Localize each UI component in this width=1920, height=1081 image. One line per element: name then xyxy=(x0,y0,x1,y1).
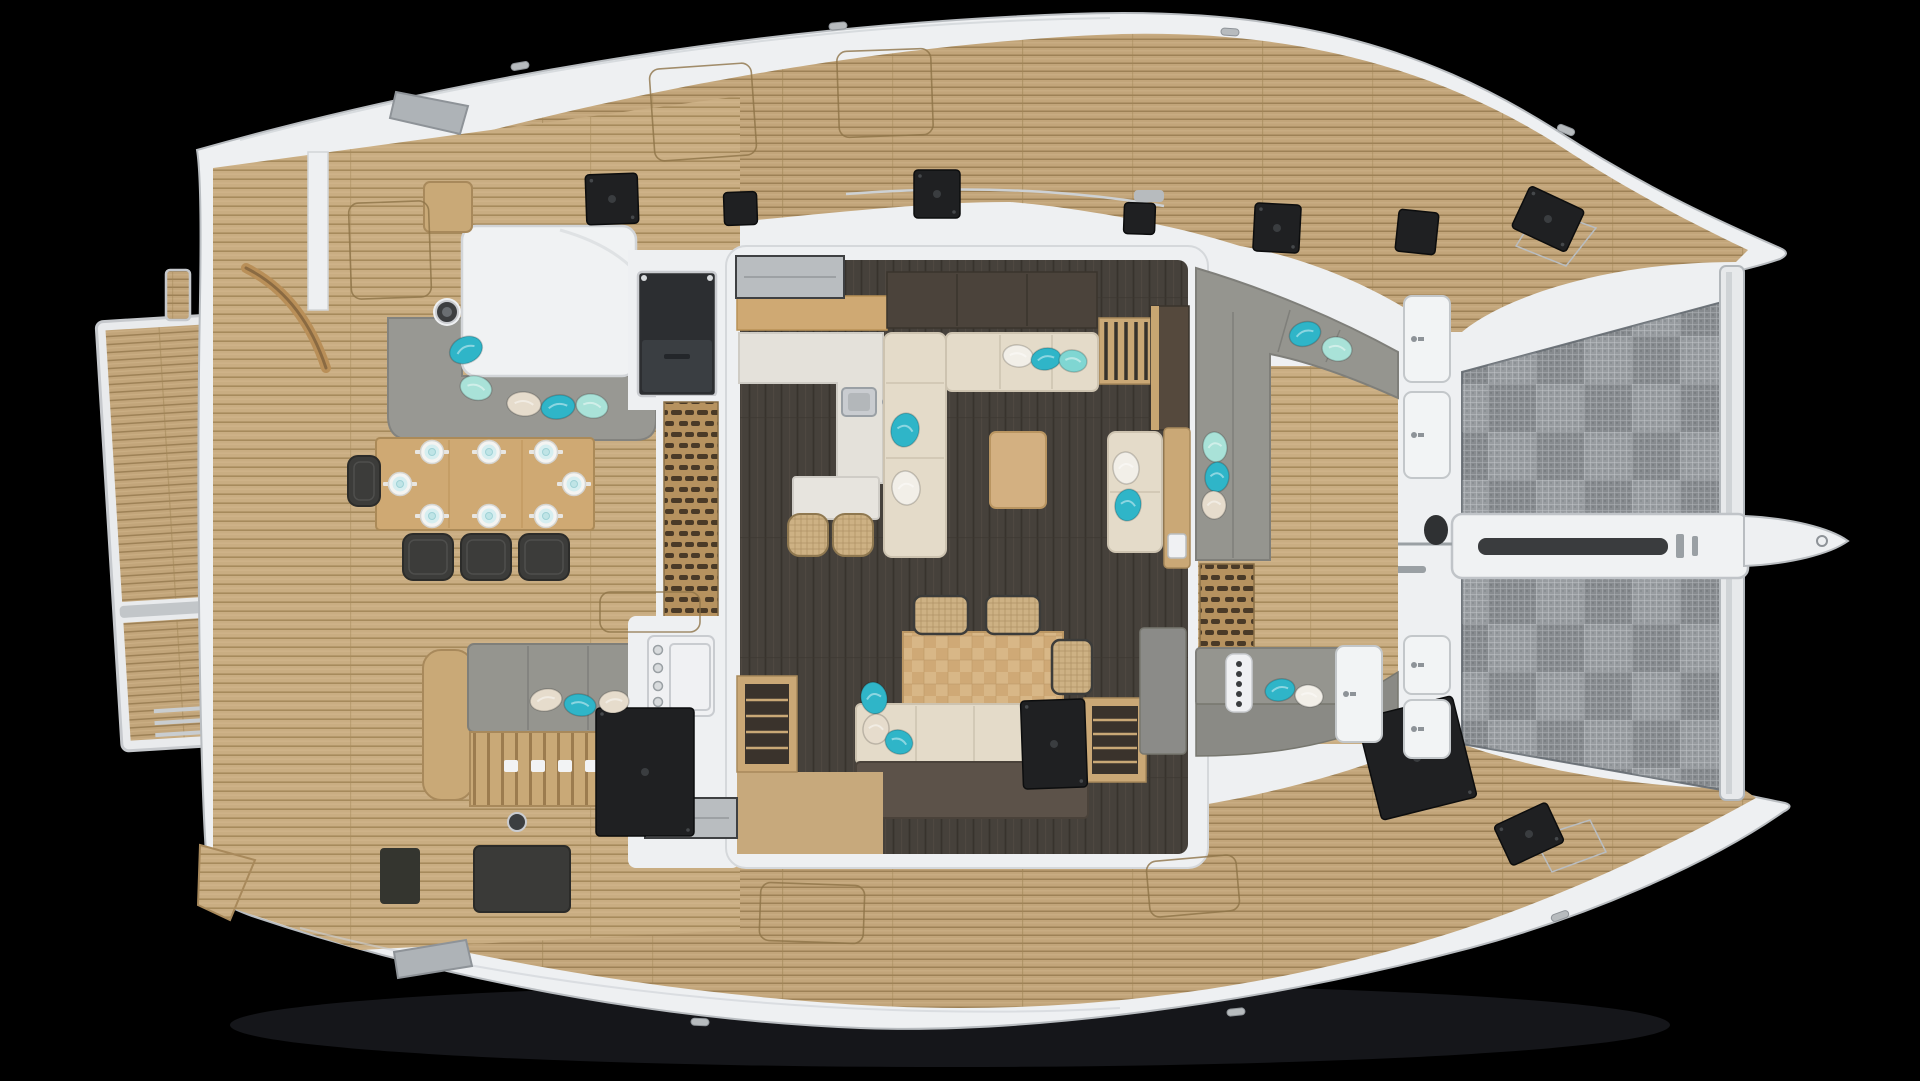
deck-vent xyxy=(380,848,420,904)
cleat xyxy=(829,22,848,31)
deck-grill-hatch xyxy=(474,846,570,912)
teak-grate-aft xyxy=(664,402,718,648)
deck-hatch xyxy=(1395,209,1439,255)
locker-hatch xyxy=(1404,700,1450,758)
salon-landing-wood xyxy=(737,772,883,854)
cockpit-partition-wall xyxy=(308,152,328,310)
locker-hatch xyxy=(1404,296,1450,382)
floor-hatch-small xyxy=(1168,534,1186,558)
dining-chair-dark xyxy=(461,534,511,580)
stair-runner-gray xyxy=(1140,628,1186,754)
windlass-hatch xyxy=(1424,515,1448,545)
deck-hatch xyxy=(723,191,757,225)
cleat xyxy=(1227,1008,1246,1017)
latch-icon xyxy=(1411,662,1417,668)
deck-hatch xyxy=(914,170,960,218)
winch xyxy=(508,813,526,831)
deck-hatch xyxy=(585,173,639,225)
locker-hatch xyxy=(1336,646,1382,742)
fridge-handle xyxy=(664,354,690,359)
winch-center xyxy=(442,307,452,317)
deck-hatch xyxy=(596,708,694,836)
teak-grate-forward xyxy=(1200,564,1254,656)
salon-dining-table xyxy=(903,632,1063,708)
locker-hatch xyxy=(1404,392,1450,478)
dining-chair-dark xyxy=(519,534,569,580)
latch-icon xyxy=(1411,336,1417,342)
galley-bar-table xyxy=(793,477,879,519)
dining-chair-dark xyxy=(403,534,453,580)
deck-plan-canvas xyxy=(0,0,1920,1081)
salon-chaise xyxy=(884,333,946,557)
dining-chair-wicker xyxy=(986,596,1040,634)
cleat xyxy=(1221,28,1239,36)
latch-icon xyxy=(1411,726,1417,732)
latch-icon xyxy=(1411,432,1417,438)
bar-stool xyxy=(788,514,828,556)
latch-icon xyxy=(1343,691,1349,697)
locker-hatch xyxy=(1404,636,1450,694)
salon xyxy=(645,246,1208,868)
coffee-table xyxy=(990,432,1046,508)
teak-seat xyxy=(424,182,472,232)
dining-chair-wicker xyxy=(1052,640,1092,694)
galley-cabinets-dark xyxy=(887,272,1097,328)
dining-chair-dark xyxy=(348,456,380,506)
deck-hatch xyxy=(1123,202,1155,234)
dining-chair-wicker xyxy=(914,596,968,634)
galley-counter-wood xyxy=(737,296,887,330)
stern-step xyxy=(166,270,190,320)
track-fitting xyxy=(1134,190,1164,202)
deck-hatch xyxy=(1253,203,1301,253)
deck-hatch xyxy=(1020,699,1087,789)
cockpit-bar-module xyxy=(462,226,636,376)
catamaran-deck-plan xyxy=(0,0,1920,1081)
bowsprit-slot xyxy=(1478,538,1668,555)
cleat xyxy=(691,1018,709,1026)
sofa-wood-arm xyxy=(423,650,473,800)
bar-stool xyxy=(833,514,873,556)
